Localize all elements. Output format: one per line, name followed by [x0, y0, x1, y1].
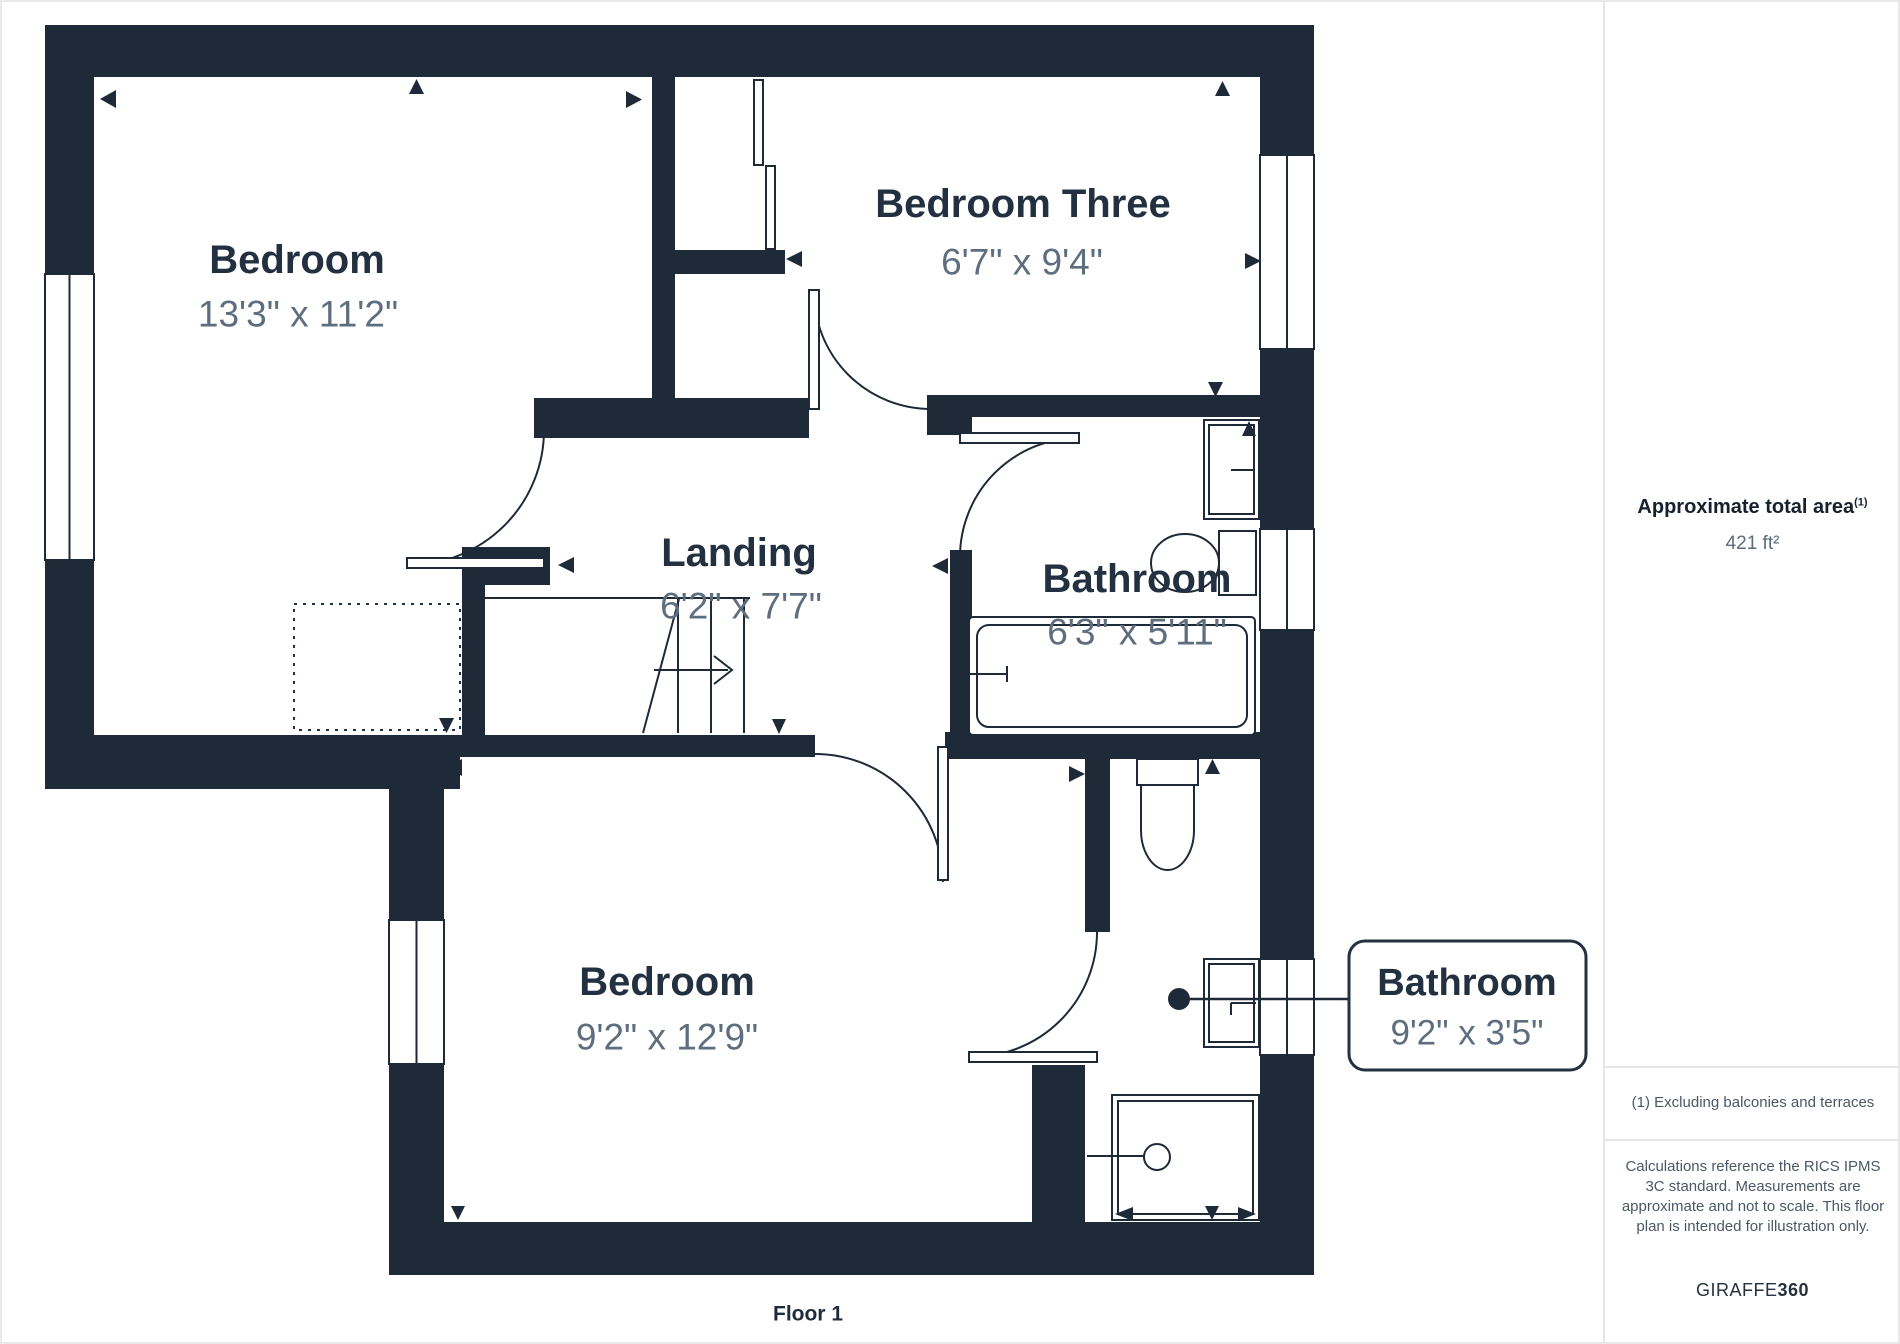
door-leaf-bedroom2: [938, 747, 948, 880]
total-area-footnote-ref: (1): [1854, 496, 1867, 508]
door-leaf-bedroom1: [407, 558, 544, 568]
closet-door-leaf-1: [754, 80, 763, 165]
marker-right-icon: [1245, 253, 1261, 269]
marker-left-icon: [100, 90, 116, 108]
callout-room-label: Bathroom: [1377, 964, 1556, 1002]
shower-icon: [1087, 1095, 1259, 1220]
sidebar-section-divider-2: [1605, 1139, 1900, 1141]
brand-suffix: 360: [1777, 1280, 1809, 1300]
door-arc-bedroom2: [815, 754, 943, 882]
marker-left-icon: [932, 558, 948, 574]
window-bedroom3-right: [1260, 155, 1314, 349]
closet-door-leaf-2: [766, 166, 775, 249]
marker-up-icon: [1215, 81, 1230, 96]
room-label-landing: Landing: [661, 533, 817, 573]
callout-room-dims: 9'2" x 3'5": [1390, 1016, 1543, 1051]
room-label-bedroom-three: Bedroom Three: [875, 184, 1171, 224]
marker-up-icon: [1205, 759, 1220, 774]
window-bathroom-right: [1260, 529, 1314, 630]
total-area-title: Approximate total area(1): [1605, 496, 1900, 519]
toilet2-icon: [1137, 759, 1198, 870]
floorplan-page: Bedroom 13'3" x 11'2" Bedroom Three 6'7"…: [0, 0, 1900, 1344]
room-dims-bedroom1: 13'3" x 11'2": [198, 296, 398, 333]
room-dims-bedroom2: 9'2" x 12'9": [576, 1019, 758, 1056]
marker-left-icon: [558, 557, 574, 573]
room-dims-bedroom-three: 6'7" x 9'4": [941, 244, 1103, 281]
marker-down-icon: [451, 1206, 465, 1220]
callout-point-icon: [1168, 988, 1190, 1010]
total-area-value: 421 ft²: [1605, 533, 1900, 555]
window-bedroom-left: [45, 274, 94, 560]
marker-right-icon: [626, 91, 642, 108]
door-arc-bathroom2: [972, 932, 1097, 1057]
marker-right-icon: [1069, 766, 1085, 782]
brand-logo: GIRAFFE360: [1605, 1280, 1900, 1301]
room-label-bathroom1: Bathroom: [1043, 559, 1232, 599]
door-arc-bedroom3: [814, 292, 931, 409]
room-dims-landing: 6'2" x 7'7": [660, 588, 822, 625]
door-leaf-bathroom1: [960, 433, 1079, 443]
marker-up-icon: [409, 79, 424, 94]
window-bathroom2-right: [1260, 959, 1314, 1055]
room-label-bedroom1: Bedroom: [209, 240, 385, 280]
marker-down-icon: [772, 719, 786, 734]
door-arc-bathroom1: [960, 438, 1079, 557]
fixtures: [969, 420, 1259, 1220]
door-arc-bedroom1: [409, 430, 544, 565]
room-dims-bathroom1: 6'3" x 5'11": [1047, 614, 1227, 651]
marker-left-icon: [786, 251, 802, 267]
room-label-bedroom2: Bedroom: [579, 962, 755, 1002]
window-bedroom2-left: [389, 920, 444, 1064]
total-area-title-text: Approximate total area: [1637, 496, 1854, 518]
floor-title: Floor 1: [773, 1304, 843, 1325]
door-leaf-bedroom3: [809, 290, 819, 409]
dotted-area-outline: [294, 604, 460, 730]
sidebar-section-divider-1: [1605, 1066, 1900, 1068]
door-leaf-bathroom2: [969, 1052, 1097, 1062]
footnote-exclusions: (1) Excluding balconies and terraces: [1613, 1094, 1893, 1111]
sidebar-divider: [1603, 2, 1605, 1344]
sink2-icon: [1204, 959, 1259, 1047]
marker-down-icon: [1208, 382, 1223, 397]
marker-down-icon: [439, 718, 454, 733]
brand-name: GIRAFFE: [1696, 1280, 1778, 1300]
disclaimer-text: Calculations reference the RICS IPMS 3C …: [1620, 1157, 1886, 1237]
